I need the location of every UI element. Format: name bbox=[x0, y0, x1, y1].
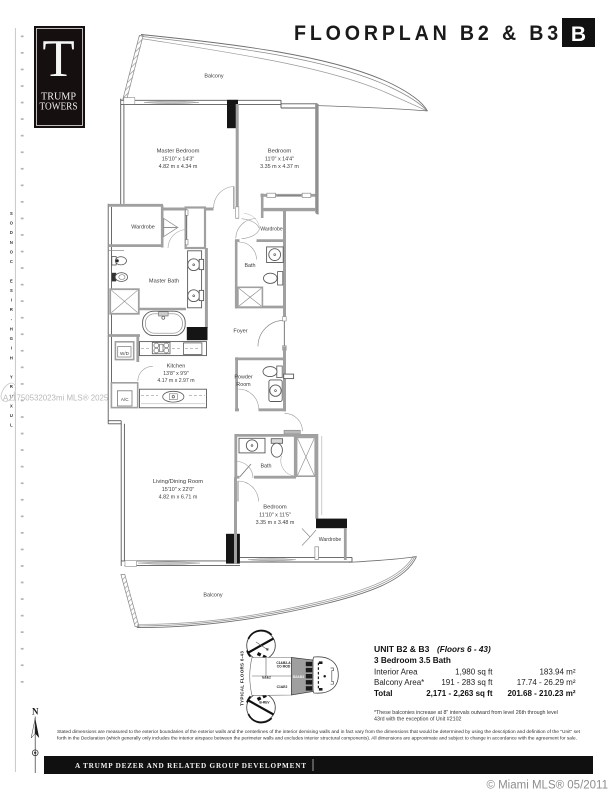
svg-text:W/D: W/D bbox=[120, 351, 130, 356]
svg-text:B: B bbox=[571, 23, 586, 46]
svg-text:FLOORPLAN B2 & B3: FLOORPLAN B2 & B3 bbox=[294, 21, 562, 45]
svg-text:17.74 - 26.29 m²: 17.74 - 26.29 m² bbox=[517, 678, 576, 687]
svg-text:1,980 sq ft: 1,980 sq ft bbox=[455, 667, 493, 676]
svg-text:Kitchen: Kitchen bbox=[167, 364, 186, 370]
svg-text:Balcony: Balcony bbox=[204, 74, 223, 80]
svg-text:15'10" x 14'3": 15'10" x 14'3" bbox=[162, 156, 195, 162]
svg-text:Bedroom: Bedroom bbox=[263, 505, 287, 511]
svg-text:Balcony: Balcony bbox=[203, 593, 222, 599]
svg-text:B2&B3: B2&B3 bbox=[293, 675, 304, 679]
svg-text:Bath: Bath bbox=[260, 464, 271, 470]
svg-text:Foyer: Foyer bbox=[233, 329, 247, 335]
svg-text:E: E bbox=[10, 278, 13, 283]
svg-text:X: X bbox=[10, 403, 13, 408]
svg-text:D: D bbox=[10, 230, 13, 235]
svg-text:4.82 m x 4.34 m: 4.82 m x 4.34 m bbox=[159, 164, 198, 170]
svg-text:A/C: A/C bbox=[121, 397, 129, 402]
svg-text:R: R bbox=[10, 384, 13, 389]
svg-text:UNIT B2 & B3: UNIT B2 & B3 bbox=[374, 644, 430, 654]
svg-text:2,171 - 2,263 sq ft: 2,171 - 2,263 sq ft bbox=[426, 689, 493, 698]
svg-text:Bath: Bath bbox=[244, 263, 255, 269]
svg-text:Interior Area: Interior Area bbox=[374, 667, 418, 676]
svg-text:191 - 283 sq ft: 191 - 283 sq ft bbox=[441, 678, 493, 687]
svg-text:Wardrobe: Wardrobe bbox=[260, 227, 283, 233]
svg-text:E&E2: E&E2 bbox=[262, 676, 271, 680]
svg-text:11'0" x 14'4": 11'0" x 14'4" bbox=[265, 156, 294, 162]
svg-text:B-REV: B-REV bbox=[259, 701, 270, 705]
svg-text:CO MOD: CO MOD bbox=[277, 665, 291, 669]
svg-text:Bedroom: Bedroom bbox=[268, 149, 292, 155]
svg-text:183.94 m²: 183.94 m² bbox=[539, 667, 575, 676]
svg-text:I: I bbox=[11, 298, 12, 303]
svg-text:Wardrobe: Wardrobe bbox=[131, 225, 154, 231]
svg-text:3 Bedroom 3.5 Bath: 3 Bedroom 3.5 Bath bbox=[374, 656, 451, 665]
svg-text:201.68 - 210.23 m²: 201.68 - 210.23 m² bbox=[507, 689, 575, 698]
svg-text:3.35 m x 3.48 m: 3.35 m x 3.48 m bbox=[256, 520, 295, 526]
svg-text:Y: Y bbox=[10, 375, 13, 380]
svg-text:N: N bbox=[10, 240, 13, 245]
svg-text:H: H bbox=[10, 326, 13, 331]
svg-text:Master Bath: Master Bath bbox=[149, 279, 179, 285]
svg-text:Living/Dining Room: Living/Dining Room bbox=[153, 479, 203, 485]
svg-text:4.82 m x 6.71 m: 4.82 m x 6.71 m bbox=[159, 495, 198, 501]
svg-text:TOWERS: TOWERS bbox=[40, 102, 78, 113]
svg-text:S: S bbox=[10, 288, 13, 293]
svg-text:Balcony Area*: Balcony Area* bbox=[374, 678, 424, 687]
svg-text:C1&E2: C1&E2 bbox=[277, 685, 288, 689]
svg-text:forth in the Declaration (whic: forth in the Declaration (which generall… bbox=[57, 736, 577, 741]
svg-text:U: U bbox=[10, 413, 13, 418]
svg-text:A11750532023mi MLS® 2025: A11750532023mi MLS® 2025 bbox=[3, 394, 109, 403]
svg-text:Powder: Powder bbox=[234, 375, 252, 381]
svg-text:R: R bbox=[10, 307, 13, 312]
svg-text:43rd with the exception of Uni: 43rd with the exception of Unit #2102 bbox=[374, 716, 462, 722]
svg-text:11'10" x 11'5": 11'10" x 11'5" bbox=[259, 512, 291, 518]
svg-text:4.17 m x 2.97 m: 4.17 m x 2.97 m bbox=[157, 378, 194, 384]
svg-text:3.35 m x 4.37 m: 3.35 m x 4.37 m bbox=[260, 164, 299, 170]
svg-text:C: C bbox=[10, 259, 13, 264]
svg-text:S: S bbox=[10, 211, 13, 216]
svg-text:15'10" x 22'0": 15'10" x 22'0" bbox=[162, 487, 195, 493]
svg-text:A TRUMP DEZER AND RELATED GROU: A TRUMP DEZER AND RELATED GROUP DEVELOPM… bbox=[75, 762, 307, 770]
svg-text:I: I bbox=[11, 346, 12, 351]
svg-text:H: H bbox=[10, 355, 13, 360]
svg-text:G: G bbox=[10, 336, 13, 341]
svg-text:*These balconies increase at 8: *These balconies increase at 8" interval… bbox=[374, 710, 558, 716]
svg-text:Room: Room bbox=[236, 382, 251, 388]
svg-text:Wardrobe: Wardrobe bbox=[319, 537, 342, 543]
svg-text:13'8" x 9'9": 13'8" x 9'9" bbox=[163, 371, 189, 377]
svg-text:Master Bedroom: Master Bedroom bbox=[157, 149, 200, 155]
svg-text:N: N bbox=[32, 707, 39, 717]
svg-text:Stated dimensions are measured: Stated dimensions are measured to the ex… bbox=[57, 729, 581, 734]
svg-text:Total: Total bbox=[374, 689, 393, 698]
svg-text:TYPICAL FLOORS 6-43: TYPICAL FLOORS 6-43 bbox=[240, 651, 245, 706]
svg-text:© Miami MLS® 05/2011: © Miami MLS® 05/2011 bbox=[486, 780, 608, 792]
svg-text:(Floors 6 - 43): (Floors 6 - 43) bbox=[437, 645, 491, 654]
svg-text:T: T bbox=[42, 30, 74, 88]
